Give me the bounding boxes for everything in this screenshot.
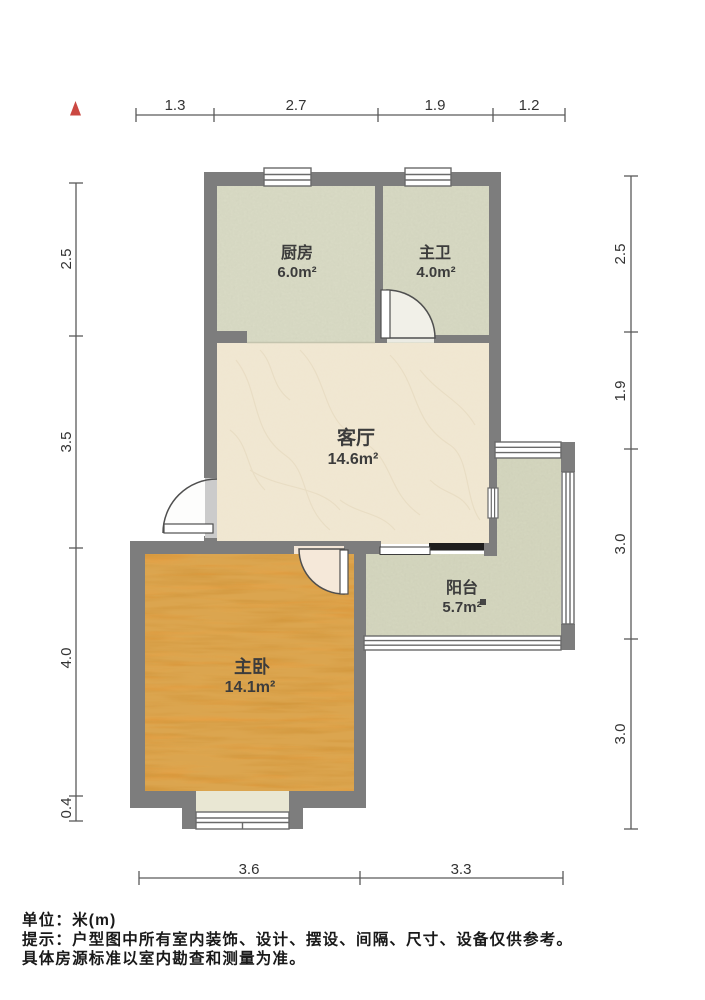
svg-text:6.0m²: 6.0m² <box>277 264 316 281</box>
svg-text:厨房: 厨房 <box>281 243 313 262</box>
svg-text:3.5: 3.5 <box>58 432 75 453</box>
svg-text:4.0m²: 4.0m² <box>416 264 455 281</box>
svg-text:14.1m²: 14.1m² <box>225 679 276 696</box>
svg-text:2.7: 2.7 <box>286 97 307 114</box>
svg-text:0.4: 0.4 <box>58 798 75 819</box>
svg-text:5.7m²: 5.7m² <box>442 599 481 616</box>
svg-text:3.0: 3.0 <box>612 534 629 555</box>
svg-text:2.5: 2.5 <box>612 244 629 265</box>
svg-text:1.9: 1.9 <box>612 381 629 402</box>
svg-text:14.6m²: 14.6m² <box>328 451 379 468</box>
svg-text:客厅: 客厅 <box>337 426 375 449</box>
svg-text:4.0: 4.0 <box>58 648 75 669</box>
svg-text:提示：户型图中所有室内装饰、设计、摆设、间隔、尺寸、设备仅供: 提示：户型图中所有室内装饰、设计、摆设、间隔、尺寸、设备仅供参考。 <box>22 930 573 949</box>
svg-text:阳台: 阳台 <box>446 578 478 597</box>
svg-text:2.5: 2.5 <box>58 249 75 270</box>
svg-text:1.2: 1.2 <box>519 97 540 114</box>
svg-text:3.6: 3.6 <box>239 861 260 878</box>
svg-text:3.3: 3.3 <box>451 861 472 878</box>
svg-text:具体房源标准以室内勘查和测量为准。: 具体房源标准以室内勘查和测量为准。 <box>22 949 306 968</box>
svg-text:主卫: 主卫 <box>419 243 451 262</box>
svg-text:1.9: 1.9 <box>425 97 446 114</box>
svg-text:1.3: 1.3 <box>165 97 186 114</box>
svg-text:单位：米(m): 单位：米(m) <box>22 910 117 929</box>
svg-text:主卧: 主卧 <box>234 656 270 677</box>
svg-text:3.0: 3.0 <box>612 724 629 745</box>
